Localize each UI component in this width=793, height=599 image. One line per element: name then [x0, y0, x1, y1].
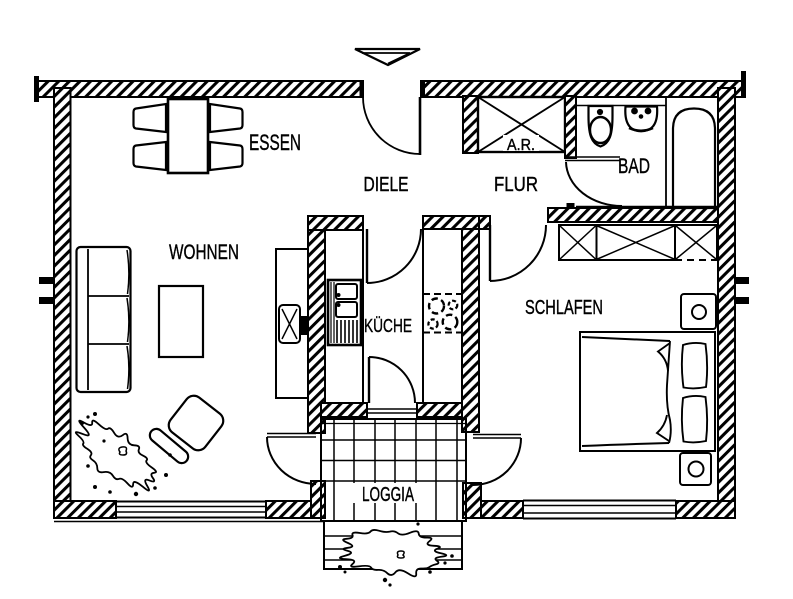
svg-text:FLUR: FLUR: [494, 174, 538, 196]
svg-text:LOGGIA: LOGGIA: [362, 484, 414, 506]
svg-text:SCHLAFEN: SCHLAFEN: [525, 297, 603, 319]
svg-text:WOHNEN: WOHNEN: [169, 241, 239, 264]
svg-text:DIELE: DIELE: [364, 174, 409, 196]
svg-text:A.R.: A.R.: [507, 137, 535, 154]
svg-text:ESSEN: ESSEN: [249, 130, 301, 155]
svg-text:KÜCHE: KÜCHE: [364, 316, 412, 336]
svg-text:BAD: BAD: [618, 155, 650, 178]
